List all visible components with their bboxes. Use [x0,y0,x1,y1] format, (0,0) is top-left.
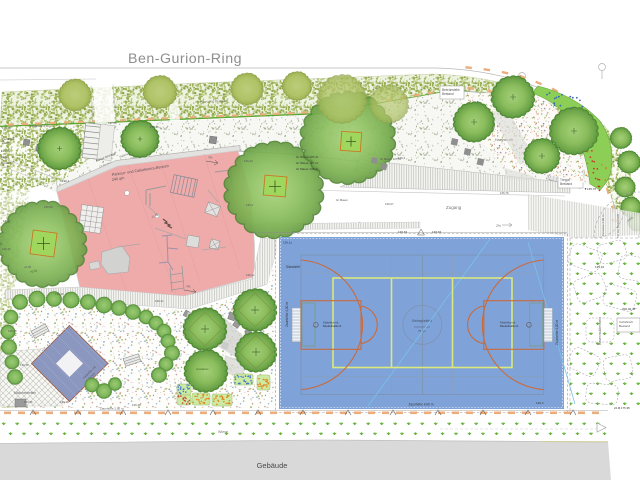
svg-text:Zaunhöhe 4,00 m: Zaunhöhe 4,00 m [555,320,559,345]
svg-text:Gr Mauer: Gr Mauer [336,198,348,202]
svg-text:24.M.175,38: 24.M.175,38 [614,406,630,410]
svg-text:Sitzwürfel: Sitzwürfel [286,265,300,269]
svg-text:136,4: 136,4 [536,401,544,405]
svg-text:135,49: 135,49 [55,292,64,296]
svg-text:136,36: 136,36 [132,403,141,407]
svg-text:Tor zur Bestandsfl.: Tor zur Bestandsfl. [616,213,620,238]
svg-text:136,07: 136,07 [385,202,394,206]
svg-text:135,76: 135,76 [500,191,509,195]
svg-text:Zaunhöhe 4,00 m: Zaunhöhe 4,00 m [285,302,289,327]
svg-text:Wiese: Wiese [218,430,228,434]
svg-text:136,08: 136,08 [2,126,11,130]
svg-text:Ausläufer: Ausläufer [196,367,209,371]
svg-text:Mädchentreffen: Mädchentreffen [14,391,36,395]
svg-text:Ben-Gurion-Ring: Ben-Gurion-Ring [128,51,242,67]
svg-text:136,4: 136,4 [398,156,405,160]
svg-text:Zaunhöhe 2,00 m: Zaunhöhe 2,00 m [100,407,124,411]
svg-text:136,43: 136,43 [244,159,253,163]
svg-text:+0,45: +0,45 [24,265,32,269]
svg-text:136,63: 136,63 [432,230,442,234]
svg-text:136,36: 136,36 [24,400,33,404]
svg-text:Bestand: Bestand [560,182,572,186]
svg-text:Bestand: Bestand [442,92,454,96]
svg-text:136,2x: 136,2x [246,273,255,277]
svg-text:Gr Wiese 137,4x: Gr Wiese 137,4x [296,155,319,159]
svg-text:136,63: 136,63 [398,230,408,234]
svg-text:Ziegel: Ziegel [1,155,9,159]
svg-text:Basketballkorb: Basketballkorb [500,324,519,328]
svg-text:135,16: 135,16 [595,265,605,269]
svg-text:Rasenmuldenstein: Rasenmuldenstein [598,317,602,345]
svg-text:Gr Wiese 137,1x: Gr Wiese 137,1x [296,161,319,165]
svg-text:Gr Mauer 136,9x: Gr Mauer 136,9x [296,167,319,171]
svg-text:Zugang: Zugang [446,205,462,210]
svg-text:137,08: 137,08 [108,121,117,125]
svg-text:136,45: 136,45 [1,149,10,153]
svg-text:2,00 m: 2,00 m [2,141,11,145]
svg-text:Terrasse 4,00 m: Terrasse 4,00 m [601,214,605,236]
svg-text:2%: 2% [496,224,501,228]
svg-text:Zaunhöhe 4,00 m: Zaunhöhe 4,00 m [409,403,434,407]
svg-text:Zaunhöhe 2,00 m: Zaunhöhe 2,00 m [30,124,53,128]
svg-text:136,4: 136,4 [62,179,69,183]
svg-text:136,4: 136,4 [3,219,10,223]
svg-text:136,1x: 136,1x [283,241,293,245]
svg-text:▼135,76: ▼135,76 [584,187,596,191]
svg-text:136,39: 136,39 [44,205,53,209]
svg-text:136,2: 136,2 [246,203,253,207]
svg-text:137,08: 137,08 [150,125,159,129]
svg-text:Basketballkorb: Basketballkorb [323,324,342,328]
svg-text:136,39: 136,39 [2,247,11,251]
svg-text:136,38: 136,38 [8,329,17,333]
svg-text:206,02,48°: 206,02,48° [622,307,637,311]
svg-text:136,36: 136,36 [20,363,29,367]
svg-text:136,38: 136,38 [60,400,69,404]
svg-text:136,3x: 136,3x [155,299,164,303]
svg-text:Gebäude: Gebäude [257,461,288,470]
svg-text:Bestand: Bestand [1,161,12,165]
svg-text:Bestand: Bestand [619,324,630,328]
